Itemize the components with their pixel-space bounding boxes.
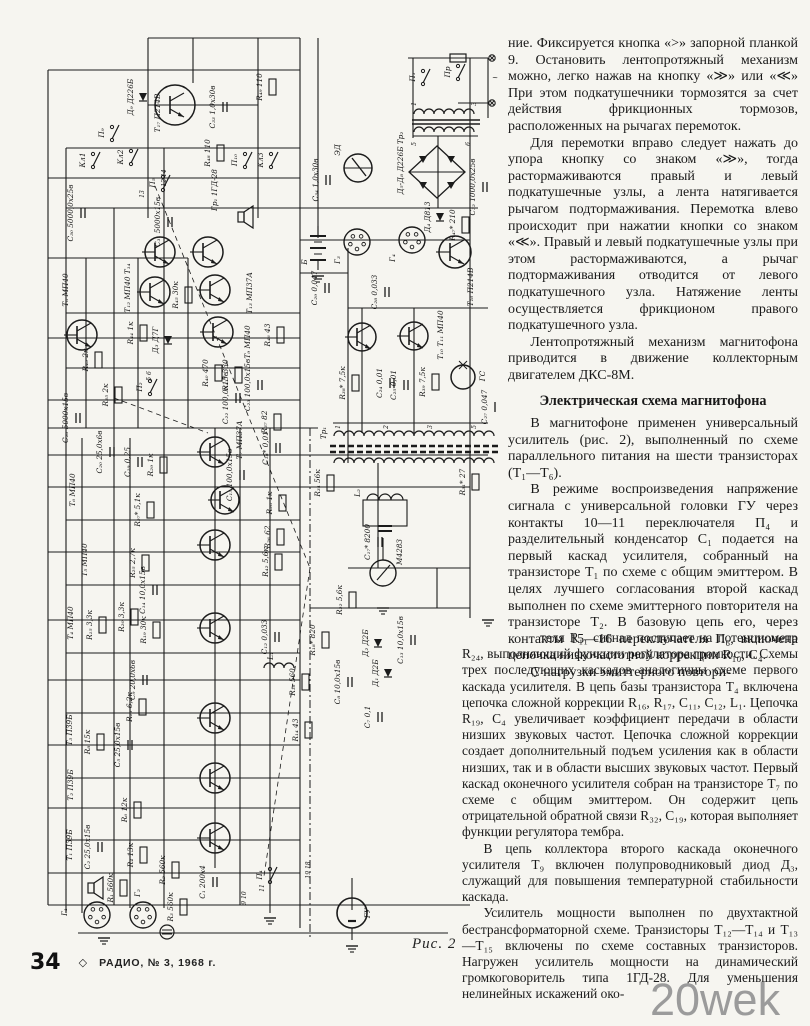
- wire: [357, 325, 371, 333]
- component-label: С₁₉ 0,25: [123, 447, 132, 477]
- socket-pin: [141, 920, 145, 924]
- component-label: R₆ 12к: [120, 797, 129, 823]
- component-label: С₂₉ 0,047: [310, 270, 319, 305]
- switch-contact: [269, 152, 272, 155]
- socket-pin: [414, 233, 418, 237]
- component-label: Б: [300, 259, 309, 266]
- resistor-icon: [305, 722, 312, 738]
- component-label: С₂₃ 100,0х15в: [243, 359, 252, 411]
- wire: [352, 158, 366, 176]
- emitter-arrow: [218, 635, 224, 640]
- socket-pin: [148, 915, 152, 919]
- emitter-arrow: [221, 339, 227, 344]
- circuit-diagram: Д₉ Д226БТ₁₇ П214ВС₃₃ 1,0х30вR₄₉ 110R₄₈ 1…: [18, 8, 498, 958]
- resistor-icon: [302, 674, 309, 690]
- emitter-arrow: [458, 259, 464, 264]
- wire: [131, 149, 138, 163]
- component-label: R₄₄ 1к: [126, 321, 135, 345]
- component-label: ~: [492, 73, 498, 82]
- resistor-icon: [352, 375, 359, 391]
- diode-icon: [139, 93, 147, 101]
- speaker-icon: [238, 212, 244, 222]
- emitter-arrow: [365, 344, 371, 349]
- component-label: Кл2: [116, 149, 125, 165]
- component-label: R₂₅ 2,7к: [128, 548, 137, 579]
- wire: [245, 152, 252, 166]
- wire: [458, 64, 465, 78]
- component-label: П₅: [148, 178, 157, 188]
- component-label: R₄₅ 30к: [171, 281, 180, 310]
- component-label: Т₄ МП40: [66, 606, 75, 640]
- component-label: Д₃ Д7Г: [151, 326, 160, 355]
- component-label: П₄: [255, 870, 264, 880]
- component-label: Д₁ Д2Б: [371, 659, 380, 688]
- component-label: Г₂: [133, 889, 142, 898]
- component-label: Т₅ МП40: [80, 543, 89, 577]
- component-label: R₃ 560к: [166, 892, 175, 923]
- component-label: С₃₂ 1000,0х25в: [468, 159, 477, 216]
- wire: [210, 533, 224, 541]
- component-label: С₁₈* 0,01: [261, 431, 270, 465]
- socket-pin: [404, 240, 408, 244]
- emitter-arrow: [218, 552, 224, 557]
- component-label: R₈ 15к: [83, 729, 92, 755]
- component-label: R₄₃ 2к: [81, 348, 90, 372]
- switch-contact: [421, 69, 424, 72]
- emitter-arrow: [218, 459, 224, 464]
- component-label: R₄ 13к: [126, 842, 135, 868]
- component-label: С₂₄ 0,01: [375, 368, 384, 398]
- coil-l1: [264, 663, 294, 668]
- component-label: ГС: [478, 370, 487, 382]
- resistor-icon: [472, 474, 479, 490]
- socket-pin: [89, 915, 93, 919]
- component-label: 2: [383, 425, 390, 430]
- diamond-icon: ◇: [79, 956, 87, 969]
- component-label: Т₃ П39Б: [65, 714, 74, 746]
- mechanical-link: [264, 568, 310, 876]
- resistor-icon: [115, 387, 122, 403]
- component-label: 12 14: [161, 169, 168, 186]
- component-label: R₁₄ 43: [291, 718, 300, 742]
- component-label: 3: [471, 102, 478, 106]
- article-column-bottom: теля R₁₁ сигнал поступает на потенциомет…: [462, 630, 798, 1003]
- component-label: R₄₉ 110: [255, 73, 264, 102]
- diode-icon: [436, 213, 444, 221]
- component-label: Д₄ Д813: [423, 201, 432, 233]
- component-label: R₂ 560к: [158, 855, 167, 886]
- emitter-arrow: [211, 259, 217, 264]
- magazine-page: Д₉ Д226БТ₁₇ П214ВС₃₃ 1,0х30вR₄₉ 110R₄₈ 1…: [0, 0, 810, 1024]
- wire: [270, 867, 277, 881]
- resistor-icon: [153, 622, 160, 638]
- resistor-icon: [277, 529, 284, 545]
- component-label: Д₅-Д₈ Д226Б Тр₂: [396, 132, 405, 196]
- component-label: С₈ 10,0х15в: [333, 660, 342, 705]
- paragraph: Для перемотки вправо следует нажать до у…: [508, 136, 798, 335]
- component-label: Т₁₀ Т₁₁ МП40: [436, 310, 445, 360]
- wire: [170, 93, 184, 101]
- emitter-arrow: [228, 507, 234, 512]
- component-label: С₂₇ 0,047: [480, 389, 489, 424]
- paragraph: В магнитофоне применен универсальный уси…: [508, 416, 798, 482]
- socket-pin: [91, 908, 95, 912]
- circuit-figure: Д₉ Д226БТ₁₇ П214ВС₃₃ 1,0х30вR₄₉ 110R₄₈ 1…: [18, 8, 498, 958]
- component-label: R₂₀ 3,3к: [117, 602, 126, 633]
- component-label: 19 18: [305, 861, 312, 878]
- wire: [93, 152, 100, 166]
- switch-contact: [129, 149, 132, 152]
- component-label: Т₆ МП40: [68, 473, 77, 507]
- resistor-icon: [140, 325, 147, 341]
- component-label: Т₉ МП40: [243, 325, 252, 359]
- component-label: С₁₃ 10,0х15в: [396, 616, 405, 664]
- resistor-icon: [275, 554, 282, 570]
- component-label: Д₂ Д2Б: [361, 629, 370, 658]
- resistor-icon: [235, 367, 242, 383]
- journal-issue-label: РАДИО, № 3, 1968 г.: [99, 957, 216, 969]
- resistor-icon: [120, 880, 127, 896]
- component-label: R₄₈ 110: [203, 139, 212, 168]
- speaker-cone: [94, 877, 103, 899]
- component-label: М4283: [395, 539, 404, 566]
- emitter-arrow: [178, 112, 184, 117]
- socket-pin: [349, 242, 353, 246]
- component-label: R₂₂ 5,6к: [335, 585, 344, 616]
- paragraph: Лентопротяжный механизм магнитофона прив…: [508, 335, 798, 385]
- component-label: Т₁₃ МП37А: [245, 272, 254, 314]
- component-label: С₁₄ 10,0х15в: [138, 566, 147, 614]
- section-heading: Электрическая схема магнитофона: [508, 393, 798, 410]
- wire: [77, 323, 91, 331]
- component-label: L₂: [353, 489, 362, 498]
- resistor-icon: [432, 374, 439, 390]
- component-label: R₃₅ 2к: [101, 383, 110, 407]
- component-label: R₄₀ 470: [201, 359, 210, 388]
- diode-icon: [384, 669, 392, 677]
- component-label: R₁ 560к: [106, 873, 115, 904]
- switch-contact: [91, 152, 94, 155]
- socket-pin: [355, 247, 359, 251]
- socket-pin: [351, 235, 355, 239]
- component-label: 5 6: [146, 371, 153, 381]
- resistor-icon: [217, 145, 224, 161]
- resistor-icon: [462, 217, 469, 233]
- component-label: R₃₈* 7,5к: [338, 366, 347, 401]
- component-label: R₁₉ 30к: [139, 616, 148, 645]
- resistor-icon: [269, 79, 276, 95]
- socket-pin: [145, 908, 149, 912]
- component-label: R₁₅ 3,3к: [85, 610, 94, 641]
- diode-icon: [374, 639, 382, 647]
- wire: [377, 565, 390, 580]
- component-label: С₂₀ 25,0х6в: [95, 430, 104, 473]
- component-label: Т₁₆ П214В: [466, 267, 475, 306]
- transformer-tr2-coil: [414, 109, 474, 114]
- emitter-arrow: [417, 343, 423, 348]
- wire: [423, 69, 430, 83]
- speaker-cone: [244, 206, 253, 228]
- component-label: П₂: [135, 382, 144, 392]
- component-label: С₉ 20,0х6в: [128, 660, 137, 700]
- component-label: 1: [411, 102, 418, 106]
- resistor-icon: [140, 847, 147, 863]
- component-label: С₂₆ 5000х15в: [61, 393, 70, 443]
- wire: [409, 324, 423, 332]
- emitter-arrow: [218, 725, 224, 730]
- microphone-icon: [160, 925, 174, 939]
- socket-pin: [99, 908, 103, 912]
- component-label: С₃₀ 5000,0х25в: [66, 185, 75, 242]
- wire: [213, 320, 227, 328]
- resistor-icon: [322, 632, 329, 648]
- component-label: С₂₈ 0,033: [370, 274, 379, 309]
- resistor-icon: [279, 495, 286, 511]
- resistor-icon: [172, 862, 179, 878]
- component-label: Т₂ П39Б: [66, 769, 75, 801]
- switch-contact: [456, 64, 459, 67]
- emitter-arrow: [218, 297, 224, 302]
- component-label: Т₈ МП40: [61, 273, 70, 307]
- component-label: С₁ 200х4: [198, 865, 207, 899]
- component-label: 9 10: [241, 891, 248, 905]
- resistor-icon: [97, 734, 104, 750]
- component-label: Т₁ П39Б: [65, 829, 74, 861]
- socket-pin: [135, 915, 139, 919]
- component-label: 3: [427, 425, 434, 429]
- component-label: 11: [259, 884, 266, 892]
- wire: [150, 280, 164, 288]
- socket-pin: [95, 920, 99, 924]
- resistor-icon: [99, 617, 106, 633]
- wire: [271, 152, 278, 166]
- wire: [210, 766, 224, 774]
- resistor-icon: [134, 802, 141, 818]
- component-label: Кл3: [256, 152, 265, 168]
- wire: [210, 826, 224, 834]
- component-label: L₁: [266, 652, 275, 661]
- component-label: R₁₈* 820: [308, 624, 317, 657]
- component-label: С₂ 25,0х15в: [83, 825, 92, 870]
- component-label: R₃₁* 27: [458, 468, 467, 496]
- paragraph: В цепь коллектора второго каскада оконеч…: [462, 841, 798, 906]
- transformer-tr2-coil: [414, 127, 474, 132]
- component-label: Г₄: [388, 254, 397, 263]
- component-label: Тр₁: [319, 427, 328, 440]
- wire: [210, 278, 224, 286]
- component-label: R₄₂ 5,6к: [261, 547, 270, 578]
- socket-pin: [406, 233, 410, 237]
- component-label: Т₇ МП37А: [235, 420, 244, 459]
- diode-icon: [164, 336, 172, 344]
- socket-pin: [137, 908, 141, 912]
- component-label: R₃₇ 82: [260, 410, 269, 434]
- component-label: R₄₆ 43: [263, 323, 272, 347]
- component-label: 1: [335, 425, 342, 429]
- component-label: П₁₀: [230, 154, 239, 167]
- component-label: П₉: [97, 128, 106, 138]
- component-label: С₇ 0,1: [363, 706, 372, 728]
- speaker-icon: [88, 883, 94, 893]
- coil-l2: [367, 494, 403, 500]
- component-label: С₃₄ 1,0х30в: [311, 158, 320, 201]
- wire: [203, 240, 217, 248]
- component-label: Т₁₂ МП40 Т₁₄: [123, 263, 132, 312]
- component-label: С₃₃ 1,0х30в: [208, 85, 217, 128]
- component-label: Гр₁ 1ГД-28: [210, 169, 219, 212]
- component-label: 13: [139, 190, 146, 198]
- component-label: С₁₅ 100,0х15в: [225, 449, 234, 501]
- switch-contact: [243, 152, 246, 155]
- component-label: Пр: [443, 66, 452, 78]
- wire: [112, 125, 119, 139]
- resistor-icon: [131, 609, 138, 625]
- page-footer: 34 ◇ РАДИО, № 3, 1968 г.: [30, 950, 430, 975]
- component-label: R₂₆ 62: [263, 525, 272, 549]
- component-label: С₃₁ 5000х15в: [153, 197, 162, 247]
- component-label: С₂₅ 0,01: [389, 370, 398, 400]
- paragraph: ние. Фиксируется кнопка «>» запорной пла…: [508, 36, 798, 136]
- wire: [210, 440, 224, 448]
- component-label: ГУ: [363, 907, 372, 919]
- component-label: П₁: [408, 72, 417, 82]
- resistor-icon: [327, 475, 334, 491]
- component-label: С₅ 25,0х15в: [113, 723, 122, 768]
- lc-tank: [363, 500, 407, 526]
- component-label: R₄₇* 210: [448, 209, 457, 242]
- component-label: Д₉ Д226Б: [126, 78, 135, 116]
- component-label: R₂₇* 5,1к: [133, 493, 142, 528]
- emitter-arrow: [218, 785, 224, 790]
- component-label: R₂₉ 1к: [146, 453, 155, 477]
- socket-pin: [362, 242, 366, 246]
- component-label: 6: [465, 142, 472, 146]
- tape-head-gs-icon: [451, 365, 475, 389]
- resistor-icon: [95, 352, 102, 368]
- component-label: R₂₈ 1к: [265, 491, 274, 515]
- socket-pin: [417, 240, 421, 244]
- socket-pin: [359, 235, 363, 239]
- component-label: Кл1: [78, 153, 87, 169]
- socket-pin: [102, 915, 106, 919]
- resistor-icon: [277, 327, 284, 343]
- resistor-icon: [349, 592, 356, 608]
- article-column-top: ние. Фиксируется кнопка «>» запорной пла…: [508, 36, 798, 682]
- page-number: 34: [30, 950, 61, 975]
- component-label: С₂₂ 100,0х15в: [221, 372, 230, 424]
- component-label: С₁₂ 0,033: [260, 619, 269, 654]
- component-label: Г₁: [60, 908, 69, 917]
- component-label: R₁₆ 560: [288, 668, 297, 697]
- component-label: R₃₉ 7,5к: [418, 367, 427, 398]
- component-label: С₁₇* 8200: [363, 524, 372, 560]
- component-label: 5: [471, 425, 478, 429]
- resistor-icon: [147, 502, 154, 518]
- resistor-icon: [180, 899, 187, 915]
- paragraph: теля R₁₁ сигнал поступает на потенциомет…: [462, 630, 798, 841]
- socket-pin: [410, 245, 414, 249]
- watermark: 20wek: [650, 974, 780, 1026]
- emitter-arrow: [218, 845, 224, 850]
- emitter-arrow: [158, 299, 164, 304]
- component-label: R₃₄ 56к: [313, 469, 322, 498]
- component-label: ЭД: [333, 143, 342, 156]
- component-label: Т₁₇ П214В: [153, 93, 162, 132]
- switch-contact: [110, 125, 113, 128]
- component-label: 5: [411, 142, 418, 146]
- component-label: Г₃: [333, 256, 342, 265]
